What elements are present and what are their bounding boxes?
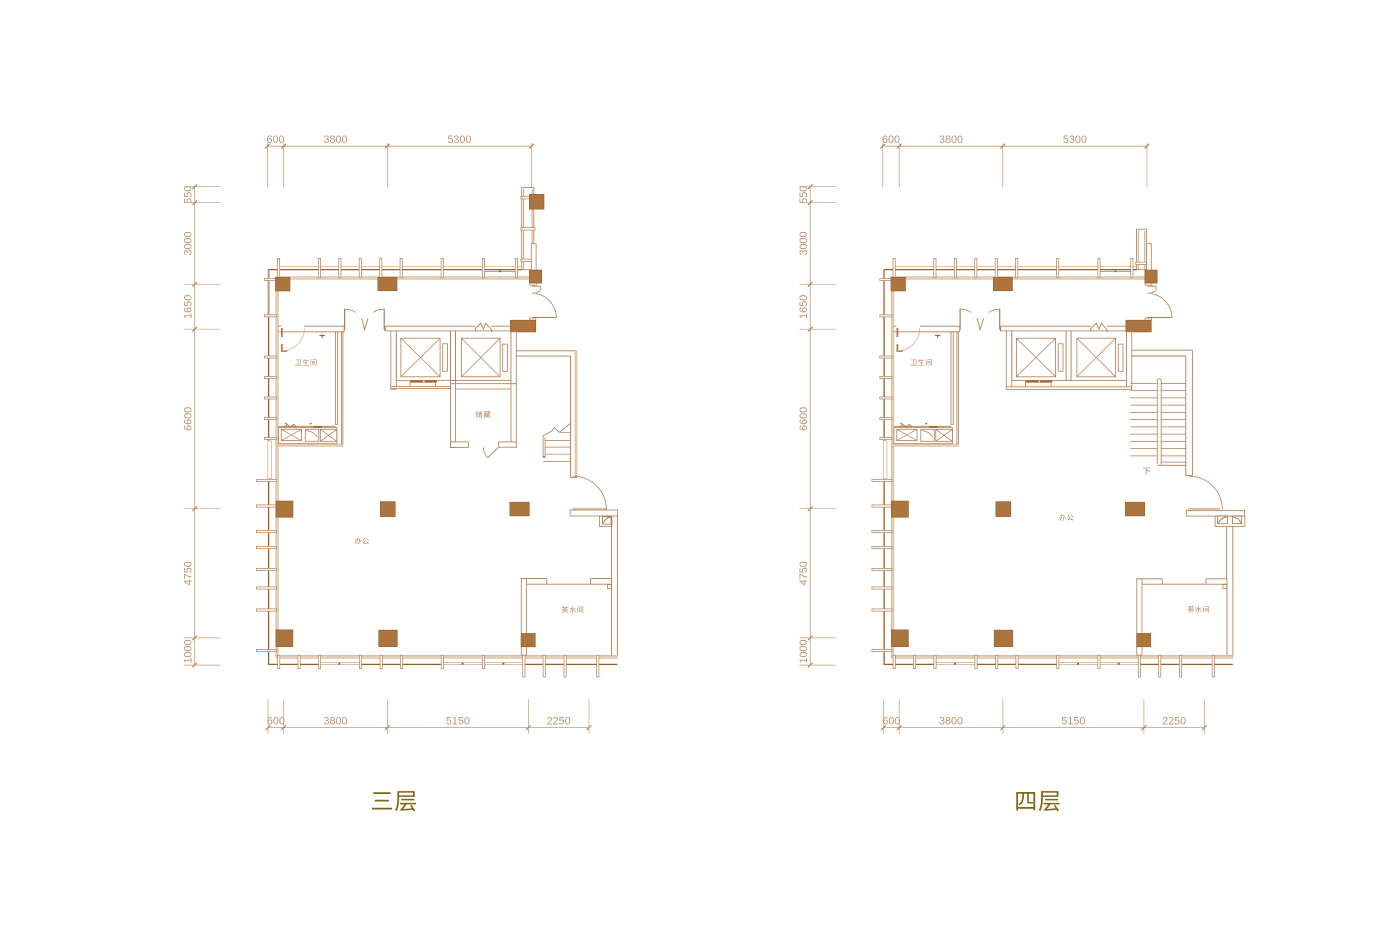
svg-text:6600: 6600 [182, 407, 194, 431]
svg-text:5300: 5300 [447, 134, 471, 146]
svg-text:550: 550 [798, 186, 810, 204]
svg-text:2250: 2250 [1162, 715, 1186, 727]
svg-text:1650: 1650 [182, 295, 194, 319]
svg-text:4750: 4750 [798, 561, 810, 585]
svg-text:600: 600 [882, 715, 900, 727]
svg-text:5300: 5300 [1063, 134, 1087, 146]
svg-text:3800: 3800 [323, 715, 347, 727]
svg-text:3800: 3800 [323, 134, 347, 146]
svg-text:1000: 1000 [182, 639, 194, 663]
svg-text:3800: 3800 [939, 715, 963, 727]
svg-text:3000: 3000 [798, 231, 810, 255]
svg-text:4750: 4750 [182, 561, 194, 585]
svg-text:1000: 1000 [798, 639, 810, 663]
svg-text:5150: 5150 [446, 715, 470, 727]
svg-text:600: 600 [266, 134, 284, 146]
svg-text:1650: 1650 [798, 295, 810, 319]
svg-text:550: 550 [182, 186, 194, 204]
svg-text:600: 600 [267, 715, 285, 727]
svg-text:600: 600 [882, 134, 900, 146]
svg-text:2250: 2250 [547, 715, 571, 727]
svg-text:3800: 3800 [939, 134, 963, 146]
svg-text:5150: 5150 [1061, 715, 1085, 727]
svg-text:3000: 3000 [182, 231, 194, 255]
svg-text:6600: 6600 [798, 407, 810, 431]
